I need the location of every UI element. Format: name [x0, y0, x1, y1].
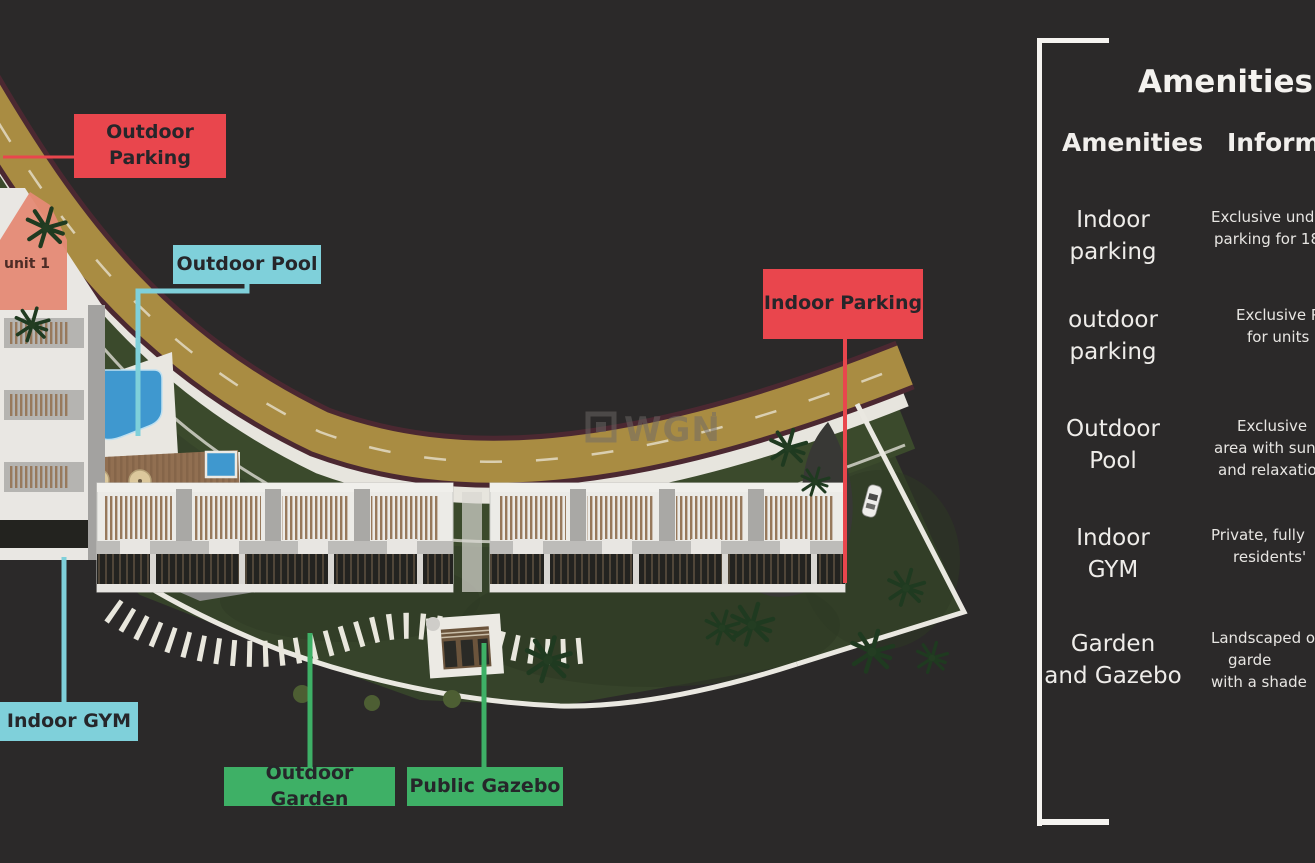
amenity-info: and relaxatio — [1218, 461, 1315, 479]
amenity-name: GYM — [1038, 557, 1188, 583]
outdoor-garden-label-text: Outdoor Garden — [224, 761, 395, 812]
amenity-info: residents' — [1233, 548, 1306, 566]
column-header-information: Information — [1227, 128, 1315, 157]
amenity-name: Indoor — [1038, 207, 1188, 233]
amenity-info: Exclusive P — [1236, 306, 1315, 324]
amenity-info: area with sun — [1214, 439, 1315, 457]
amenity-info: parking for 18 — [1214, 230, 1315, 248]
amenity-info: with a shade — [1211, 673, 1307, 691]
amenity-name: parking — [1038, 239, 1188, 265]
outdoor-parking-label: Outdoor Parking — [74, 114, 226, 178]
amenity-name: parking — [1038, 339, 1188, 365]
amenity-name: and Gazebo — [1038, 663, 1188, 689]
wgn-watermark-text: WGN — [624, 410, 721, 450]
amenity-info: Exclusive — [1237, 417, 1307, 435]
amenity-name: Garden — [1038, 631, 1188, 657]
outdoor-garden-label: Outdoor Garden — [224, 767, 395, 806]
jacuzzi — [206, 452, 236, 477]
amenity-name: Outdoor — [1038, 416, 1188, 442]
panel-bracket-bottom-arm — [1037, 819, 1109, 825]
screenshot-canvas: unit 1 — [0, 0, 1315, 863]
outdoor-pool-label: Outdoor Pool — [173, 245, 321, 284]
column-header-amenities: Amenities — [1062, 128, 1203, 157]
amenity-info: Landscaped o — [1211, 629, 1315, 647]
indoor-parking-label-text: Indoor Parking — [764, 291, 922, 317]
gazebo-shrub — [426, 617, 440, 631]
main-building-wing-left — [97, 483, 453, 592]
panel-bracket-top-arm — [1037, 38, 1109, 43]
amenity-name: Pool — [1038, 448, 1188, 474]
outdoor-pool-label-text: Outdoor Pool — [177, 252, 318, 278]
amenity-name: outdoor — [1038, 307, 1188, 333]
amenity-name: Indoor — [1038, 525, 1188, 551]
indoor-gym-label-text: Indoor GYM — [7, 709, 131, 735]
outdoor-parking-label-text: Outdoor Parking — [94, 120, 206, 171]
amenities-panel-title: Amenities — [1138, 64, 1308, 100]
unit-1-label: unit 1 — [4, 256, 50, 272]
amenity-info: for units — [1247, 328, 1309, 346]
public-gazebo-label-text: Public Gazebo — [410, 774, 561, 800]
indoor-gym-label: Indoor GYM — [0, 702, 138, 741]
amenity-info: garde — [1228, 651, 1271, 669]
main-building-wing-right — [490, 483, 845, 592]
public-gazebo-label: Public Gazebo — [407, 767, 563, 806]
central-passage — [462, 492, 482, 592]
indoor-parking-label: Indoor Parking — [763, 269, 923, 339]
amenity-info: Private, fully — [1211, 526, 1305, 544]
amenity-info: Exclusive und — [1211, 208, 1314, 226]
